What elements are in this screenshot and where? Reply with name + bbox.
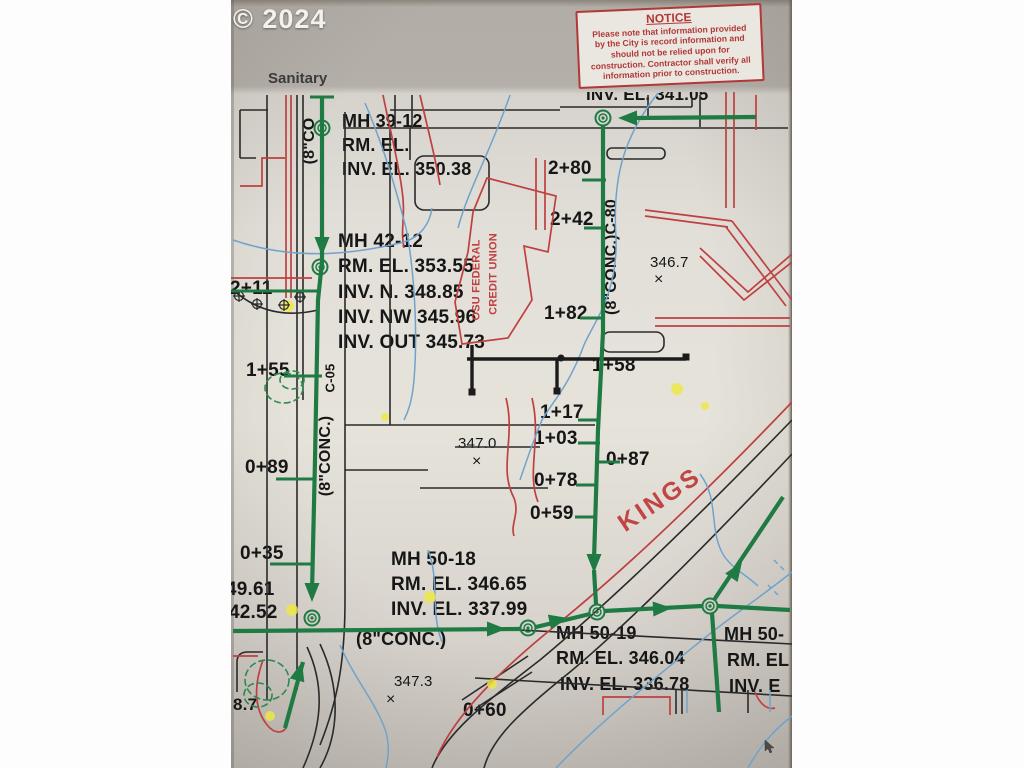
- mouse-cursor-icon: [764, 740, 776, 754]
- map-photo-page: © 2024 Sanitary NOTICE Please note that …: [0, 0, 1024, 768]
- highlighter-marks: [265, 300, 709, 721]
- survey-symbols: [232, 289, 318, 707]
- flow-arrow-icons: [290, 111, 748, 683]
- sanitary-sewer-lines: [231, 96, 790, 728]
- map-linework: [0, 0, 1024, 768]
